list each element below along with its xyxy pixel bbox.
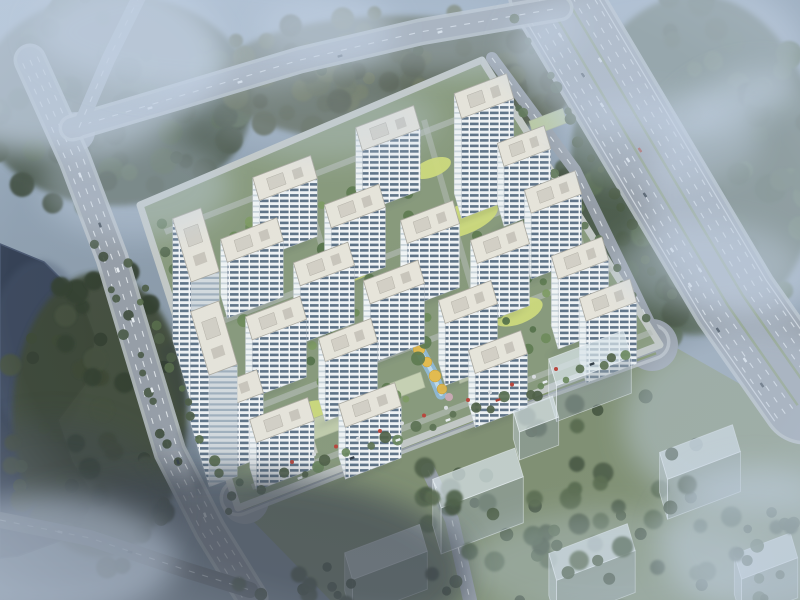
residential-compound-aerial-rendering (0, 0, 800, 600)
edge-haze-vignette (0, 0, 800, 600)
aerial-render-viewport (0, 0, 800, 600)
